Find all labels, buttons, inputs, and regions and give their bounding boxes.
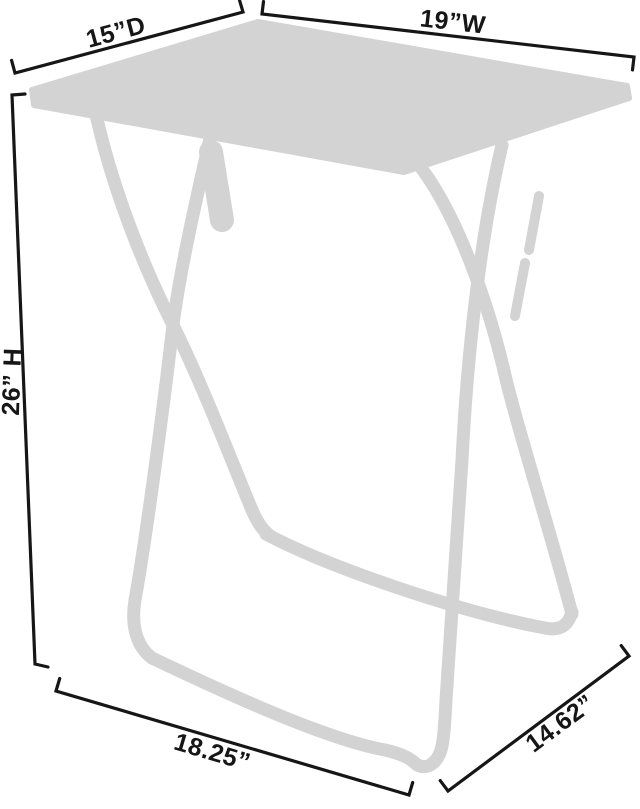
table-silhouette [32,22,629,767]
diagram-canvas: 15”D 19”W 26” H 18.25” 14.62” [0,0,640,809]
right-latch-bracket [515,196,539,316]
left-front-leg [95,110,272,537]
height-dimension-label: 26” H [0,347,27,416]
rear-floor-bar [266,534,572,629]
left-latch-bracket [211,152,222,220]
dimension-diagram: 15”D 19”W 26” H 18.25” 14.62” [0,0,640,809]
right-rear-leg [415,160,572,614]
base-depth-dimension-line [440,646,629,791]
base-depth-dimension-label: 14.62” [521,689,600,758]
base-width-dimension-label: 18.25” [171,728,254,777]
